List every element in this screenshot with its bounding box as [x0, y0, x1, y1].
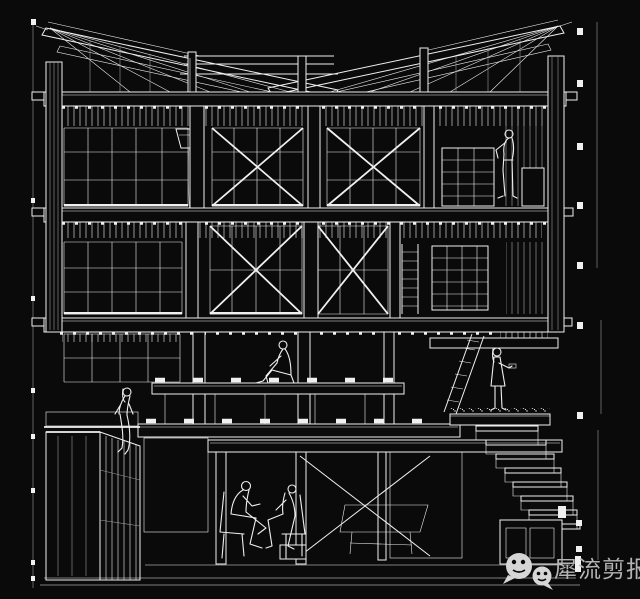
window-grid [64, 128, 188, 206]
storey-3 [64, 128, 544, 206]
tick-marker [31, 19, 36, 25]
floor-beam [44, 208, 562, 222]
brick-wall [144, 438, 208, 532]
column [548, 56, 564, 332]
shelving-unit [442, 148, 494, 206]
figure-standing-stairs [491, 348, 516, 410]
window-grid [64, 242, 182, 314]
basement-girder [208, 440, 562, 452]
figure-seated-basement-left [220, 482, 266, 559]
floor-beam [44, 92, 566, 106]
shelving-unit [432, 246, 488, 310]
watermark-text: 犀流剪报 [554, 557, 640, 583]
storey-2 [64, 226, 488, 314]
cabinet [522, 168, 544, 206]
reference-marks-right [575, 22, 601, 572]
wall-ladder [402, 244, 418, 314]
figure-sitting-platform [256, 341, 294, 383]
box-room [46, 432, 140, 580]
screenshot-root: 犀流剪报 [0, 0, 640, 599]
reference-marks-left [31, 19, 36, 588]
x-brace [327, 128, 420, 206]
x-brace [300, 456, 430, 556]
floor-beam [44, 318, 562, 332]
x-brace [212, 128, 303, 206]
garden-deck [44, 412, 140, 427]
tick-marker [577, 28, 583, 35]
watermark: 犀流剪报 [503, 553, 640, 590]
mid-platform [152, 380, 404, 424]
gravel-walkway-right [450, 408, 550, 425]
section-drawing: 犀流剪报 [0, 0, 640, 599]
